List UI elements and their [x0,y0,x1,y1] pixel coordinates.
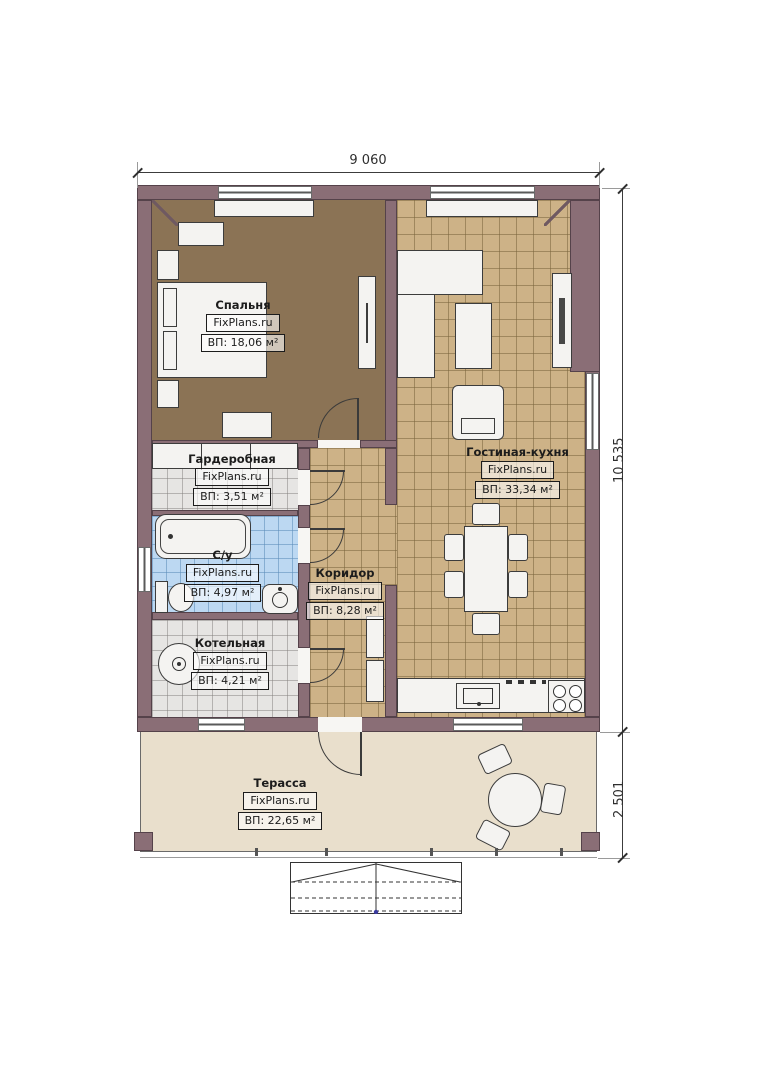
terrace-post-left [134,832,153,851]
dim-width: 9 060 [318,153,418,168]
nightstand-bottom [157,380,179,408]
room-area: ВП: 3,51 м² [193,488,271,506]
window-kitchen-bottom [453,718,523,731]
window-bathroom-left [138,547,151,592]
window-living-right [586,373,599,450]
wall-bedroom-south-right [360,440,397,448]
extension-line [598,858,630,859]
terrace-post-right [581,832,600,851]
terrace-baluster [560,848,563,856]
bathroom-door-leaf [310,528,345,530]
extension-line [602,188,630,189]
coffee-table [455,303,492,369]
wall-exterior-left [137,200,152,717]
window-living-top [430,186,535,199]
bedroom-wardrobe-unit [358,276,376,369]
room-name: Котельная [195,636,266,650]
room-label-bedroom: Спальня FixPlans.ru ВП: 18,06 м² [183,298,303,352]
wall-bedroom-living [385,200,397,448]
stove [548,680,585,713]
room-label-boiler: Котельная FixPlans.ru ВП: 4,21 м² [170,636,290,690]
room-label-living-kitchen: Гостиная-кухня FixPlans.ru ВП: 33,34 м² [455,445,580,499]
corridor-closet [366,616,384,658]
watermark-label: FixPlans.ru [243,792,316,810]
tv-stand [552,273,572,368]
window-boiler-bottom [198,718,245,731]
dining-chair [444,534,464,561]
armchair [452,385,504,440]
extension-line [600,732,630,733]
dining-chair [472,613,500,635]
corridor-closet [366,660,384,702]
dining-chair [508,534,528,561]
watermark-label: FixPlans.ru [481,461,554,479]
room-name: С/у [212,548,232,562]
bedroom-door-leaf [357,398,359,440]
dim-line-top [137,172,600,173]
terrace-baluster [430,848,433,856]
bedroom-cabinet [178,222,224,246]
pillow [163,288,177,327]
terrace-baluster [325,848,328,856]
room-name: Терасса [253,776,306,790]
wardrobe-door-leaf [310,470,345,472]
pillow [163,331,177,370]
room-label-bathroom: С/у FixPlans.ru ВП: 4,97 м² [165,548,280,602]
terrace-edge-outer [140,857,597,858]
room-area: ВП: 22,65 м² [238,812,323,830]
terrace-edge [140,851,597,852]
dim-height-terrace: 2 501 [612,781,627,818]
dishwasher-mark [506,680,546,684]
terrace-door-opening [318,717,362,732]
wall-corridor-left-d [298,683,310,717]
watermark-label: FixPlans.ru [308,582,381,600]
bedroom-window-sill [214,200,314,217]
floor-plan: Спальня FixPlans.ru ВП: 18,06 м² Гардеро… [0,0,763,1080]
dining-chair [472,503,500,525]
watermark-label: FixPlans.ru [206,314,279,332]
watermark-label: FixPlans.ru [195,468,268,486]
terrace-door-leaf [360,732,362,776]
kitchen-sink [456,683,500,709]
wall-corridor-left-b [298,505,310,528]
room-name: Спальня [215,298,270,312]
window-bedroom-top [218,186,312,199]
room-name: Гардеробная [188,452,276,466]
room-label-wardrobe: Гардеробная FixPlans.ru ВП: 3,51 м² [172,452,292,506]
bedroom-dresser [222,412,272,438]
nightstand-top [157,250,179,280]
sofa-top-arm [397,250,483,295]
watermark-label: FixPlans.ru [193,652,266,670]
terrace-baluster [255,848,258,856]
corner-hatch-left [152,200,178,226]
room-area: ВП: 8,28 м² [306,602,384,620]
stairs [290,862,462,914]
extension-line [599,162,600,188]
wardrobe-door-opening [298,470,310,505]
wall-corridor-left-a [298,448,310,470]
boiler-door-opening [298,648,310,683]
extension-line [137,162,138,188]
dim-height-main: 10 535 [612,438,627,484]
tv [559,298,565,344]
dining-chair [508,571,528,598]
wall-corridor-living-upper [385,448,397,505]
bathtub-drain [168,534,173,539]
corner-hatch-right [544,200,570,226]
terrace-baluster [495,848,498,856]
room-name: Коридор [315,566,374,580]
room-area: ВП: 33,34 м² [475,481,560,499]
room-area: ВП: 4,21 м² [191,672,269,690]
bedroom-door-opening [318,440,360,448]
living-window-sill [426,200,538,217]
room-label-corridor: Коридор FixPlans.ru ВП: 8,28 м² [285,566,405,620]
armchair-cushion [461,418,495,434]
terrace-table [488,773,542,827]
bathroom-door-opening [298,528,310,563]
wall-tv-niche [570,200,600,372]
boiler-door-leaf [310,648,345,650]
kitchen-counter [397,678,585,713]
wardrobe-handle [366,303,368,343]
room-name: Гостиная-кухня [466,445,569,459]
dining-table [464,526,508,612]
watermark-label: FixPlans.ru [186,564,259,582]
room-area: ВП: 18,06 м² [201,334,286,352]
sink-faucet [477,702,481,706]
room-label-terrace: Терасса FixPlans.ru ВП: 22,65 м² [220,776,340,830]
dining-chair [444,571,464,598]
room-area: ВП: 4,97 м² [184,584,262,602]
